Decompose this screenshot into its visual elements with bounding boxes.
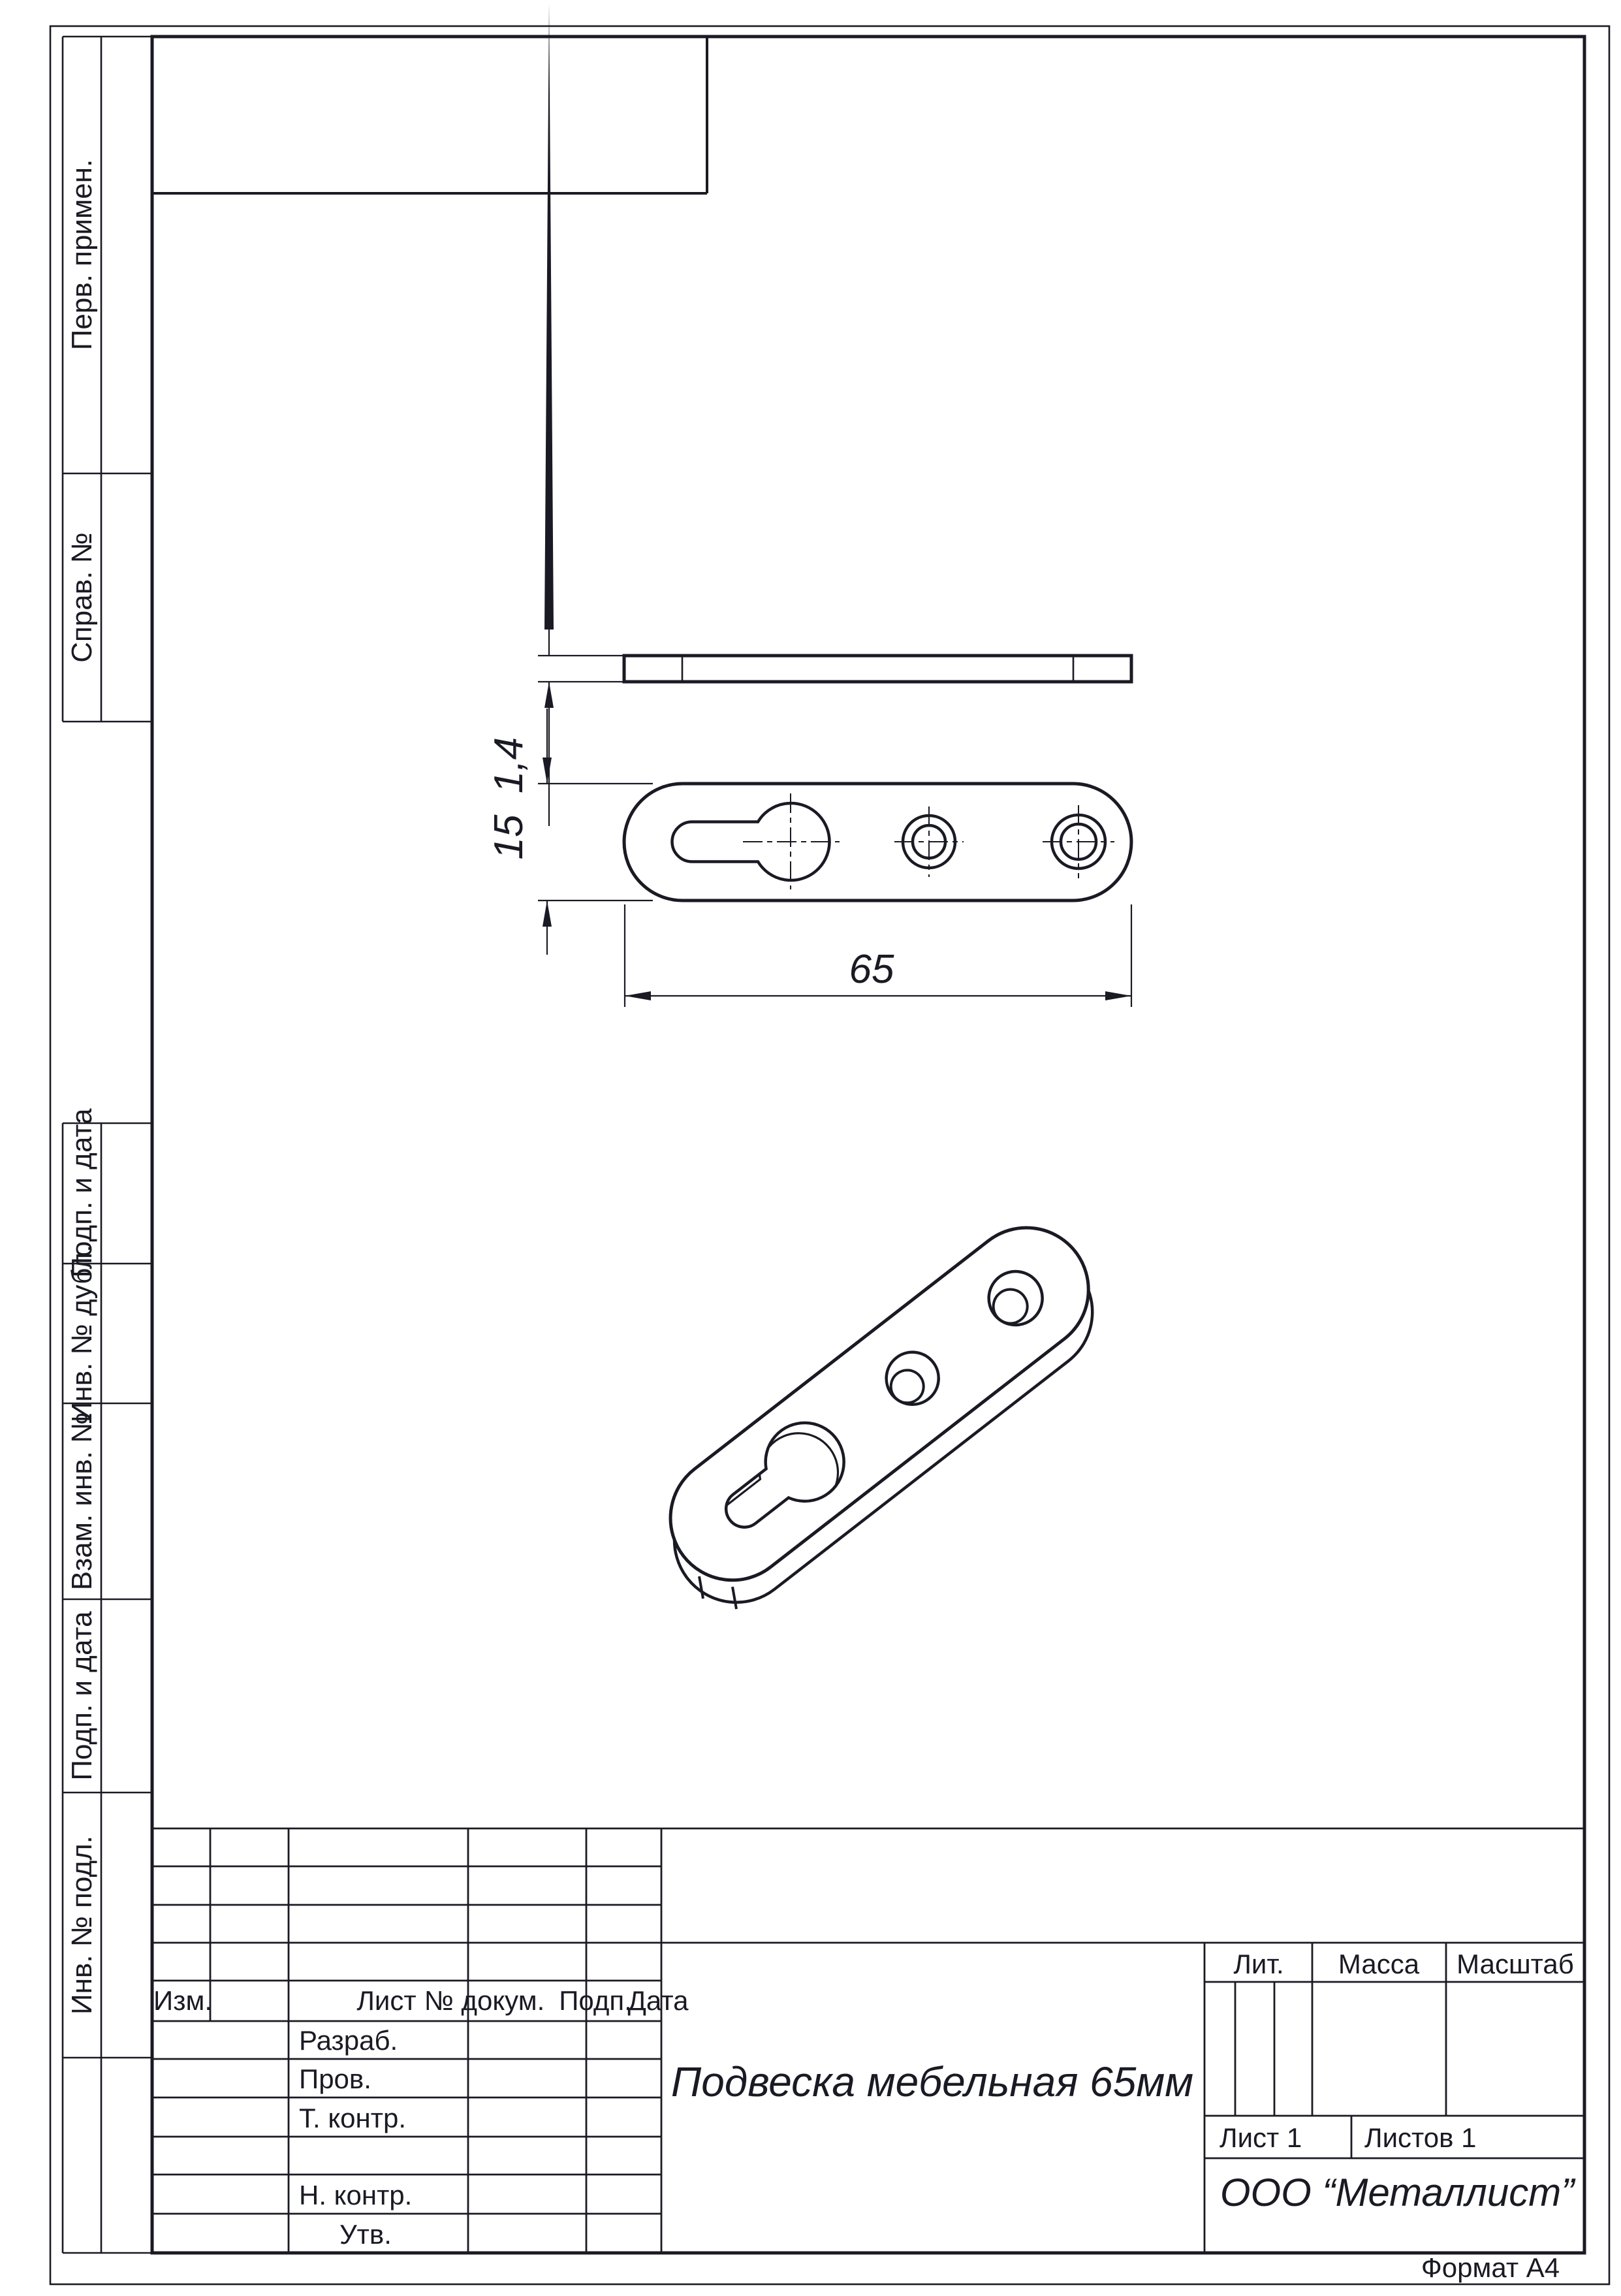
tb-company-name: ООО “Металлист” [1220,2171,1576,2214]
dim-length-arrow-left [625,991,651,1000]
page-borders [50,26,1609,2284]
view-side: 1,4 [486,4,1131,826]
drawing-canvas: Перв. примен. Справ. № Подп. и дата Инв.… [0,0,1621,2293]
tb-header-podp: Подп. [559,1985,632,2016]
tb-role-razrab: Разраб. [299,2025,398,2056]
tb-header-izm: Изм. [153,1985,212,2016]
view-isometric [646,1203,1118,1627]
dim-thickness-value: 1,4 [486,737,531,793]
dim-width-arrow-top [543,757,552,784]
stamp-label-perv-primen: Перв. примен. [66,159,98,351]
dim-width-value: 15 [486,814,531,859]
tb-role-t-kontr: Т. контр. [299,2103,406,2133]
tb-role-n-kontr: Н. контр. [299,2180,412,2210]
dim-length-arrow-right [1105,991,1131,1000]
tb-sheet-no: Лист 1 [1220,2122,1302,2153]
tb-document-name: Подвеска мебельная 65мм [671,2058,1193,2105]
tb-massa-label: Масса [1338,1949,1420,1979]
side-view-plate [624,656,1131,682]
stamp-label-podp-data-2: Подп. и дата [66,1611,98,1781]
tb-masshtab-label: Масштаб [1456,1949,1574,1979]
dim-width-arrow-bottom [543,901,552,927]
tb-role-prov: Пров. [299,2064,371,2094]
tb-header-list: Лист [356,1985,416,2016]
topleft-designation-box [152,37,707,193]
tb-header-doc-no: № докум. [424,1985,545,2016]
stamp-label-vzam-inv-no: Взам. инв. № [66,1412,98,1591]
view-top: 15 65 [486,709,1131,1007]
tb-sheets-total: Листов 1 [1364,2122,1477,2153]
drawing-sheet: Перв. примен. Справ. № Подп. и дата Инв.… [0,0,1621,2293]
iso-top-face [646,1203,1114,1605]
dim-thickness-arrow-top [544,4,554,630]
dim-thickness-arrow-bottom [544,682,554,708]
outer-page-border [50,26,1609,2284]
format-note: Формат А4 [1421,2252,1560,2283]
left-margin-labels: Перв. примен. Справ. № Подп. и дата Инв.… [66,159,98,2015]
tb-role-utv: Утв. [339,2219,392,2250]
stamp-label-inv-no-dubl: Инв. № дубл. [66,1245,98,1422]
tb-header-data: Дата [627,1985,689,2016]
stamp-label-sprav-no: Справ. № [66,532,98,663]
stamp-label-inv-no-podl: Инв. № подл. [66,1836,98,2015]
inner-frame [152,37,1584,2253]
tb-lit-label: Лит. [1233,1949,1283,1979]
dim-length-value: 65 [849,947,894,992]
